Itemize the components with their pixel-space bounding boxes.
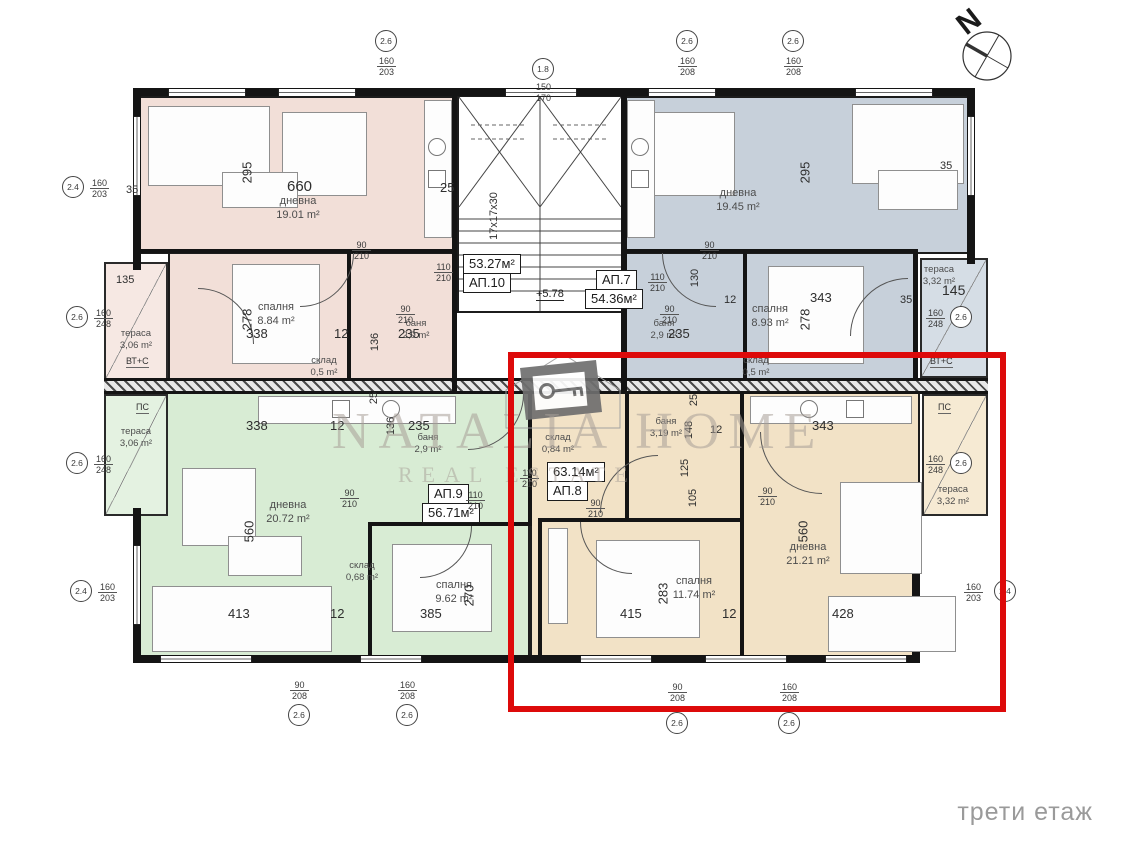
axis-marker: 2.6 bbox=[66, 306, 88, 328]
dim-295: 295 bbox=[797, 162, 812, 184]
floor-plan-canvas: 17x17x30 bbox=[0, 0, 1123, 847]
axis-marker: 2.4 bbox=[62, 176, 84, 198]
dim-136: 136 bbox=[369, 333, 381, 351]
dim-12: 12 bbox=[330, 606, 344, 621]
window bbox=[168, 89, 246, 96]
wall-stair-left bbox=[452, 95, 457, 392]
dim-413: 413 bbox=[228, 606, 250, 621]
label-ap10-living: дневна19.01 m² bbox=[252, 194, 344, 223]
dim-385: 385 bbox=[420, 606, 442, 621]
dim-25: 25 bbox=[440, 180, 454, 195]
dim-235: 235 bbox=[398, 326, 420, 341]
dim-660: 660 bbox=[287, 178, 312, 195]
kitchen-counter bbox=[424, 100, 452, 238]
axis-marker: 2.6 bbox=[782, 30, 804, 52]
dim-fraction: 110210 bbox=[434, 262, 453, 284]
dim-fraction: 90210 bbox=[396, 304, 415, 326]
dim-135: 135 bbox=[116, 274, 134, 286]
dim-338: 338 bbox=[246, 418, 268, 433]
label-ap10-storage: склад0,5 m² bbox=[296, 355, 352, 380]
dim-fraction: 160248 bbox=[926, 308, 945, 330]
sink bbox=[428, 138, 446, 156]
dim-235: 235 bbox=[668, 326, 690, 341]
dim-fraction: 90208 bbox=[290, 680, 309, 702]
floor-label: трети етаж bbox=[957, 798, 1093, 827]
stair-steps-label: 17x17x30 bbox=[488, 192, 500, 240]
dim-fraction: 160248 bbox=[94, 308, 113, 330]
dim-130: 130 bbox=[689, 269, 701, 287]
annotation-ps-left: ПС bbox=[136, 402, 149, 414]
axis-marker: 2.6 bbox=[375, 30, 397, 52]
label-ap9-terrace: тераса3,06 m² bbox=[101, 426, 171, 451]
axis-marker: 2.4 bbox=[70, 580, 92, 602]
dim-fraction: 160203 bbox=[98, 582, 117, 604]
label-ap9-bedroom: спалня9.62 m² bbox=[408, 578, 500, 607]
dim-fraction: 90210 bbox=[660, 304, 679, 326]
kitchen-counter bbox=[627, 100, 655, 238]
window bbox=[278, 89, 356, 96]
dim-145: 145 bbox=[942, 282, 965, 298]
axis-marker: 2.6 bbox=[950, 306, 972, 328]
window bbox=[134, 545, 140, 625]
dim-fraction: 90210 bbox=[340, 488, 359, 510]
coffee-table bbox=[228, 536, 302, 576]
svg-text:N: N bbox=[950, 2, 987, 41]
wall-ap9-bedroom-left bbox=[368, 522, 372, 660]
highlight-ap8 bbox=[508, 352, 1006, 712]
window bbox=[160, 656, 252, 662]
dim-295: 295 bbox=[239, 162, 254, 184]
axis-marker: 1.8 bbox=[532, 58, 554, 80]
ap7-total-area: 54.36м² bbox=[585, 289, 643, 309]
window bbox=[855, 89, 933, 96]
coffee-table bbox=[878, 170, 958, 210]
label-ap9-storage: склад0,68 m² bbox=[332, 560, 392, 585]
ap10-id: АП.10 bbox=[463, 273, 511, 293]
window bbox=[648, 89, 716, 96]
dim-12: 12 bbox=[334, 326, 348, 341]
dim-278: 278 bbox=[797, 309, 812, 331]
dim-fraction: 110210 bbox=[648, 272, 667, 294]
dim-fraction: 160203 bbox=[90, 178, 109, 200]
ap10-total-area: 53.27м² bbox=[463, 254, 521, 274]
axis-marker: 2.6 bbox=[288, 704, 310, 726]
axis-marker: 2.6 bbox=[778, 712, 800, 734]
stove bbox=[631, 170, 649, 188]
dim-fraction: 160248 bbox=[94, 454, 113, 476]
window bbox=[968, 116, 974, 196]
wall-ap10-divide bbox=[139, 249, 455, 253]
dim-12: 12 bbox=[724, 294, 736, 306]
dim-560: 560 bbox=[241, 521, 256, 543]
axis-marker: 2.6 bbox=[66, 452, 88, 474]
dim-fraction: 150170 bbox=[534, 82, 553, 104]
dim-fraction: 90210 bbox=[352, 240, 371, 262]
axis-marker: 2.6 bbox=[396, 704, 418, 726]
dim-35: 35 bbox=[900, 294, 912, 306]
north-compass-icon: N bbox=[940, 0, 1050, 100]
dim-270: 270 bbox=[461, 585, 476, 607]
dim-fraction: 160208 bbox=[678, 56, 697, 78]
label-ap7-living: дневна19.45 m² bbox=[692, 186, 784, 215]
dim-fraction: 110210 bbox=[466, 490, 485, 512]
annotation-vtc-left: ВТ+С bbox=[126, 356, 149, 368]
window bbox=[360, 656, 422, 662]
label-ap10-terrace: тераса3,06 m² bbox=[101, 328, 171, 353]
level-marker: +5.78 bbox=[536, 288, 564, 301]
dim-35: 35 bbox=[126, 184, 138, 196]
axis-marker: 2.6 bbox=[666, 712, 688, 734]
dim-fraction: 160203 bbox=[377, 56, 396, 78]
dim-fraction: 160208 bbox=[398, 680, 417, 702]
dim-fraction: 160208 bbox=[784, 56, 803, 78]
dining-table bbox=[650, 112, 735, 196]
axis-marker: 2.6 bbox=[676, 30, 698, 52]
ap7-id: АП.7 bbox=[596, 270, 637, 290]
sink bbox=[631, 138, 649, 156]
dim-343: 343 bbox=[810, 290, 832, 305]
dim-fraction: 90210 bbox=[700, 240, 719, 262]
dim-35: 35 bbox=[940, 160, 952, 172]
dim-338: 338 bbox=[246, 326, 268, 341]
